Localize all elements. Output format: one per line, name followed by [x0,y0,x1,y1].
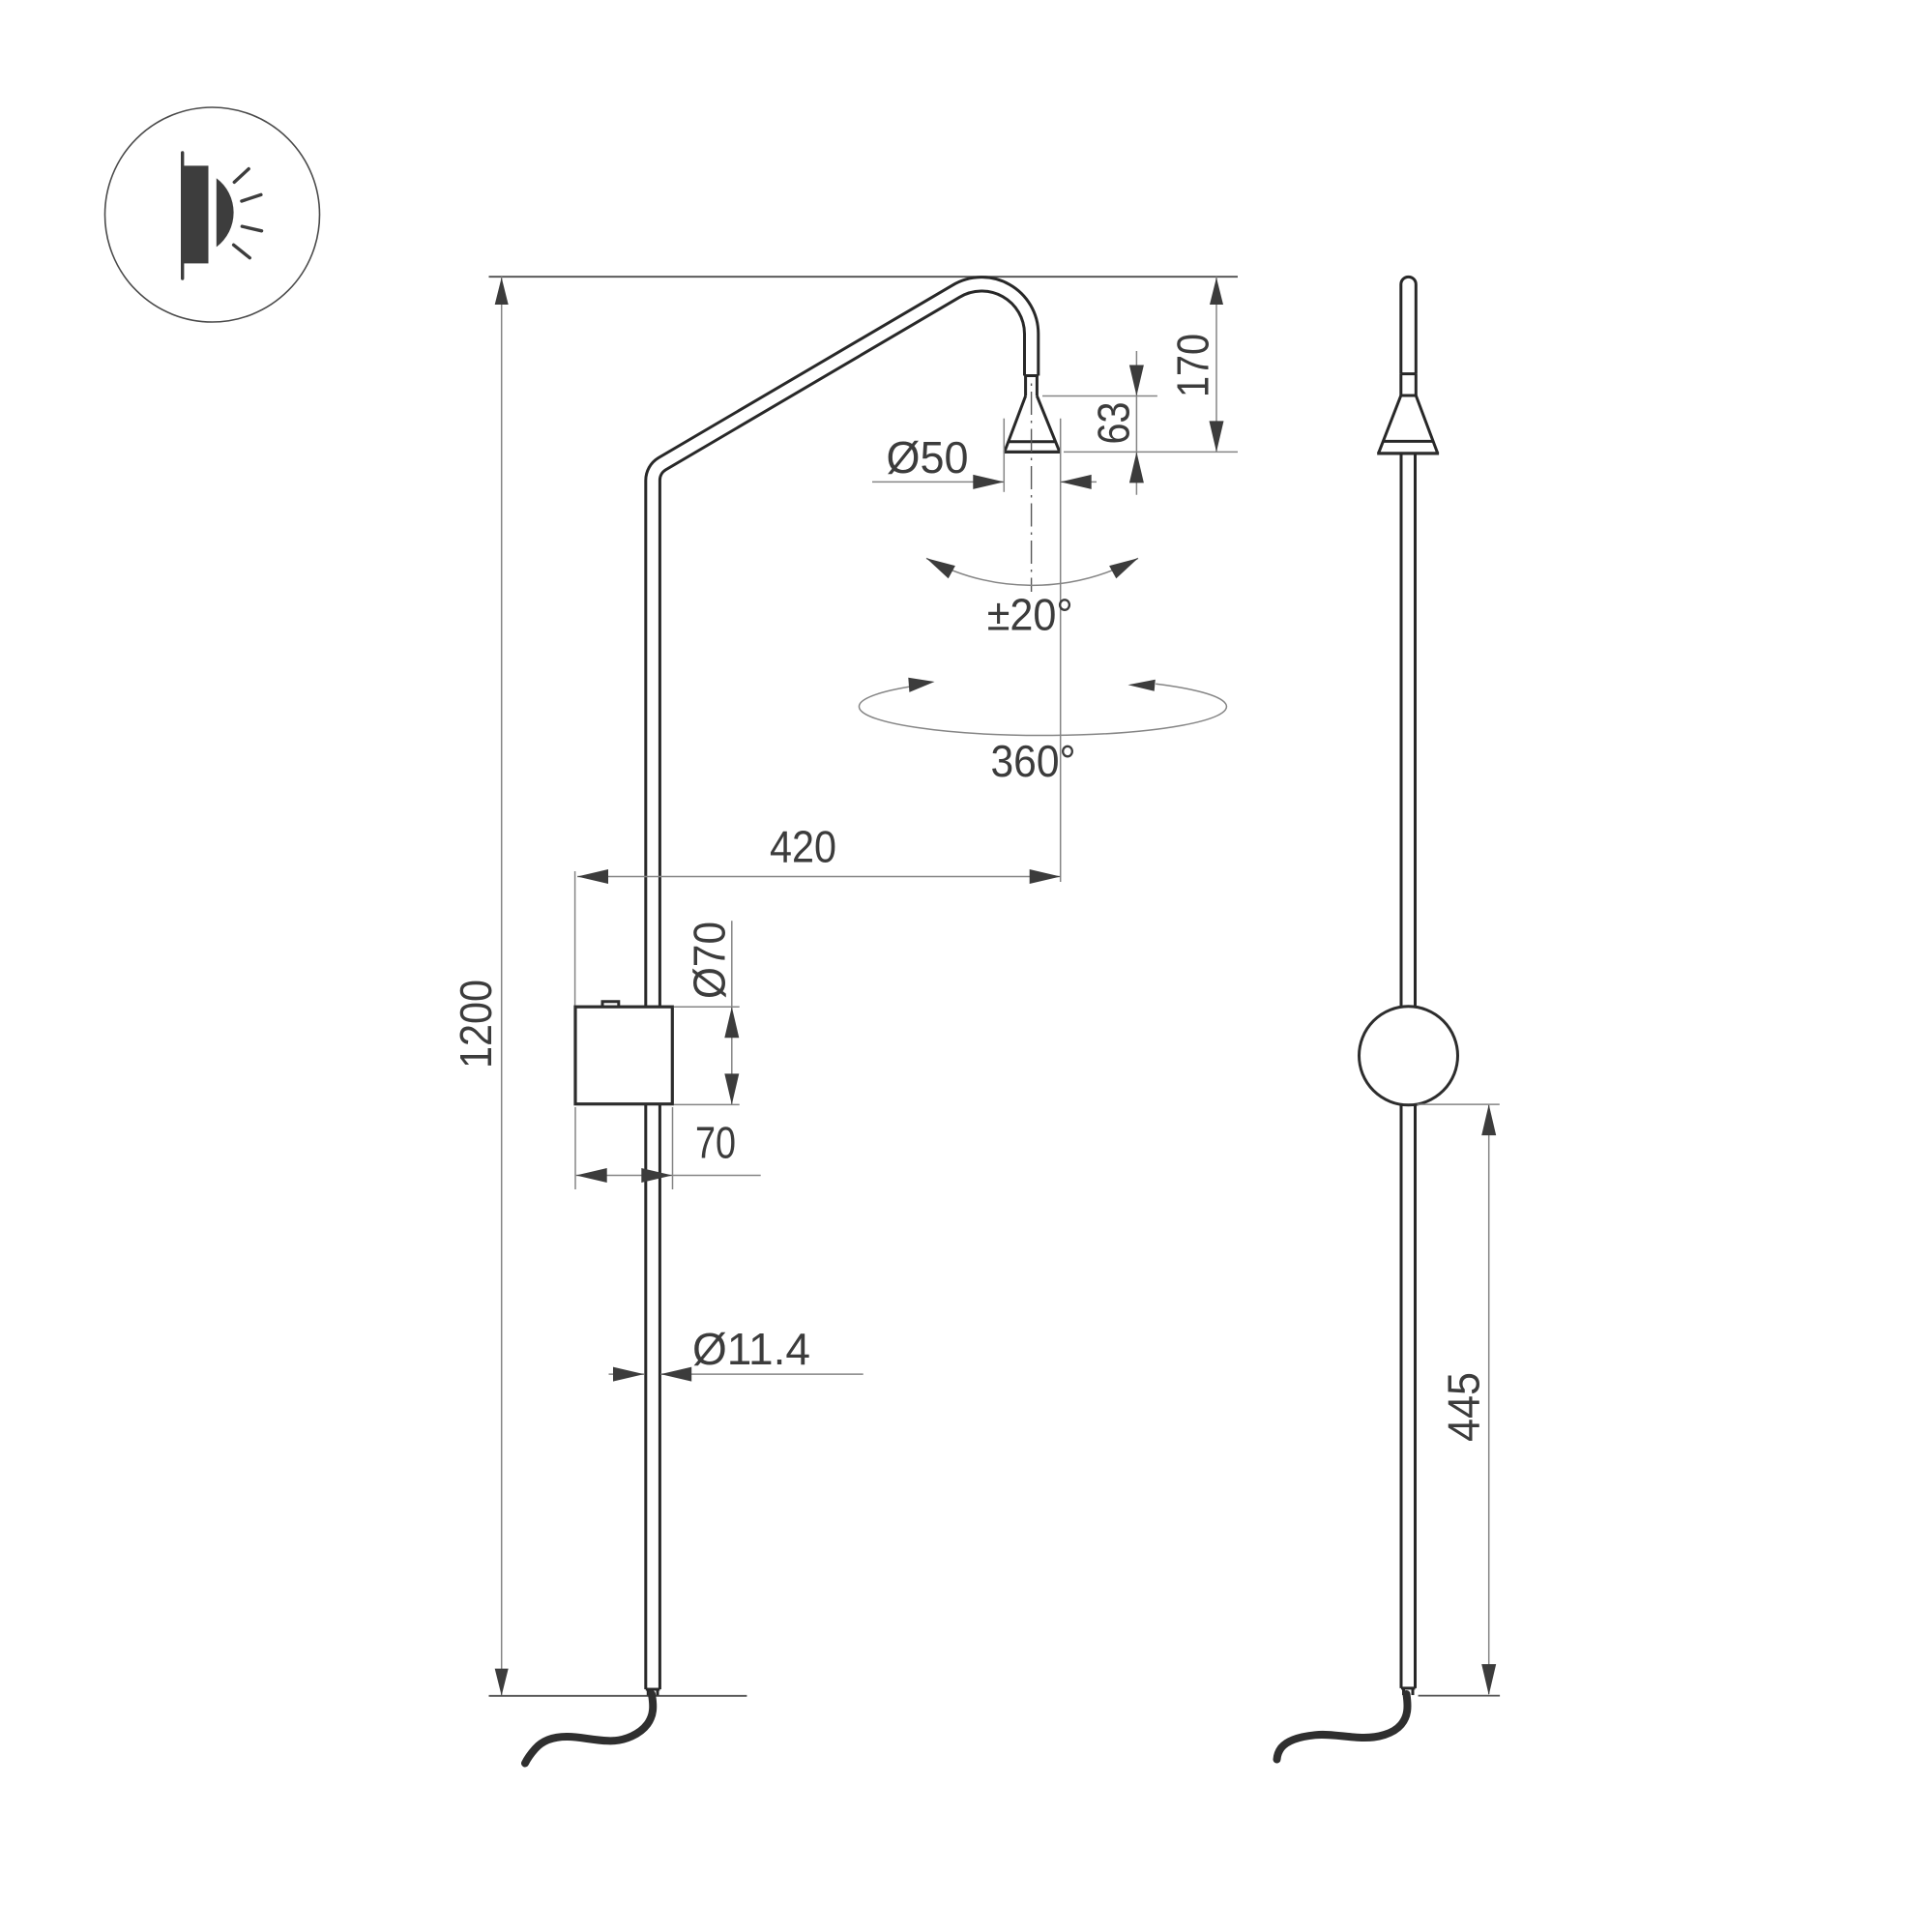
svg-text:445: 445 [1439,1372,1489,1442]
svg-text:Ø11.4: Ø11.4 [692,1324,810,1374]
svg-text:Ø70: Ø70 [684,922,734,999]
svg-text:63: 63 [1089,402,1139,445]
svg-text:±20°: ±20° [987,590,1073,640]
svg-text:70: 70 [695,1118,736,1168]
svg-text:Ø50: Ø50 [887,432,969,483]
svg-text:170: 170 [1168,334,1218,397]
svg-text:360°: 360° [991,736,1076,786]
svg-text:1200: 1200 [451,980,501,1068]
svg-text:420: 420 [770,822,836,872]
